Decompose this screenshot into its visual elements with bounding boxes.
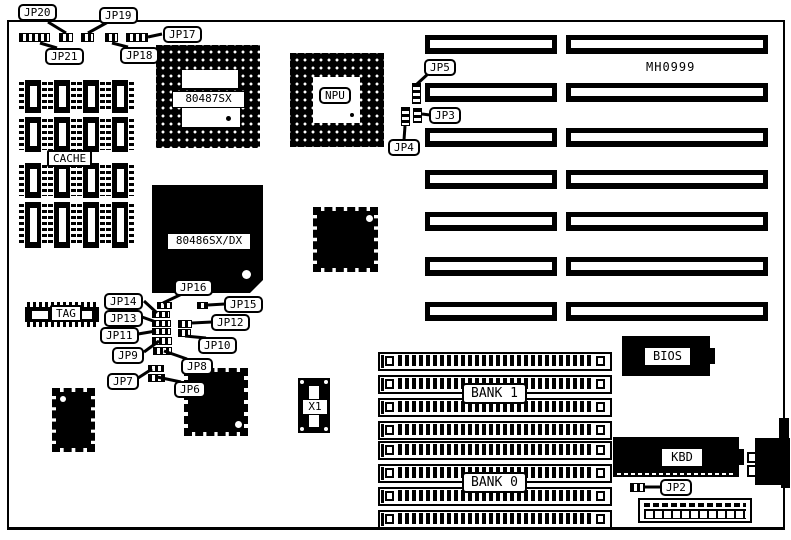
cache-chip	[54, 80, 70, 113]
cache-chip	[112, 163, 128, 198]
jumper-label-jp19: JP19	[99, 7, 138, 24]
qfp-chip	[313, 207, 378, 272]
jumper-block-jp2	[630, 483, 645, 492]
npu-socket: NPU	[290, 53, 384, 147]
cache-chip	[25, 117, 41, 152]
jumper-block-jp11	[152, 328, 171, 335]
cache-chip	[112, 202, 128, 248]
pin1-marker	[366, 215, 373, 222]
pin1-marker	[242, 270, 251, 279]
kbd-label: KBD	[661, 448, 703, 467]
bios-chip: BIOS	[622, 336, 710, 376]
isa-slot-segment	[425, 212, 557, 231]
cache-chip	[25, 163, 41, 198]
pin1-marker	[235, 421, 242, 428]
power-connector	[638, 498, 752, 523]
isa-slot-segment	[425, 35, 557, 54]
solder-dot	[300, 427, 304, 431]
cache-chip	[112, 80, 128, 113]
cache-chip	[83, 117, 99, 152]
jumper-block-jp18	[105, 33, 118, 42]
board-model-text: MH0999	[646, 60, 695, 74]
crystal-pad	[309, 386, 319, 399]
jumper-block-jp15	[197, 302, 208, 309]
din-pin	[747, 452, 757, 463]
jumper-block-jp3	[413, 108, 422, 123]
isa-slot-segment	[566, 35, 768, 54]
jumper-block-jp17	[126, 33, 148, 42]
pin1-marker	[60, 396, 66, 402]
solder-dot	[324, 427, 328, 431]
cache-chip	[112, 117, 128, 152]
crystal-label: X1	[302, 399, 328, 415]
simm-socket	[378, 441, 612, 460]
jumper-label-jp4: JP4	[388, 139, 420, 156]
motherboard-diagram: JP20 JP19 JP17 JP21 JP18 CACHE 80487SX N…	[0, 0, 791, 540]
cache-chip	[83, 202, 99, 248]
jumper-label-jp7: JP7	[107, 373, 139, 390]
bank1-label: BANK 1	[462, 383, 527, 404]
kbd-controller-chip: KBD	[613, 437, 739, 477]
jumper-block-jp21	[19, 33, 50, 42]
keyboard-din-connector	[755, 438, 790, 485]
isa-slot-segment	[566, 128, 768, 147]
jumper-label-jp20: JP20	[18, 4, 57, 21]
jumper-label-jp17: JP17	[163, 26, 202, 43]
cpu-label: 80486SX/DX	[167, 233, 251, 250]
chip-notch	[710, 348, 715, 364]
simm-socket	[378, 510, 612, 529]
jumper-block-jp13	[152, 320, 171, 327]
jumper-label-jp11: JP11	[100, 327, 139, 344]
jumper-label-jp9: JP9	[112, 347, 144, 364]
solder-dot	[324, 380, 328, 384]
isa-slot-segment	[566, 257, 768, 276]
pin1-marker	[226, 116, 231, 121]
keyboard-din-connector	[781, 480, 790, 488]
jumper-block-jp19	[81, 33, 94, 42]
isa-slot-segment	[425, 302, 557, 321]
isa-slot-segment	[566, 83, 768, 102]
jumper-block-jp8	[153, 347, 172, 355]
jumper-label-jp5: JP5	[424, 59, 456, 76]
socket-cutout	[182, 108, 240, 127]
npu-label: NPU	[319, 87, 351, 104]
jumper-label-jp12: JP12	[211, 314, 250, 331]
jumper-block-jp10	[178, 329, 191, 337]
copro-socket-80487sx: 80487SX	[156, 45, 260, 148]
keyboard-din-connector	[779, 418, 789, 439]
jumper-block-jp14	[152, 311, 170, 318]
jumper-block-jp9	[152, 337, 172, 345]
pin1-marker	[350, 113, 354, 117]
chip-pin-row	[617, 473, 735, 475]
din-pin	[747, 465, 757, 477]
qfp-chip	[52, 388, 95, 452]
jumper-block-jp6	[148, 374, 165, 382]
bank0-label: BANK 0	[462, 472, 527, 493]
socket-cutout	[182, 70, 238, 88]
jumper-label-jp8: JP8	[181, 358, 213, 375]
jumper-label-jp14: JP14	[104, 293, 143, 310]
jumper-label-jp3: JP3	[429, 107, 461, 124]
cache-chip	[54, 117, 70, 152]
jumper-block-jp20	[59, 33, 73, 42]
simm-socket	[378, 352, 612, 371]
jumper-label-jp13: JP13	[104, 310, 143, 327]
isa-slot-segment	[566, 212, 768, 231]
cache-chip	[83, 80, 99, 113]
jumper-block-jp4	[401, 107, 410, 126]
qfp-chip	[184, 368, 248, 436]
copro-socket-label: 80487SX	[172, 91, 245, 108]
jumper-label-jp16: JP16	[174, 279, 213, 296]
chip-notch	[739, 449, 744, 465]
jumper-label-jp2: JP2	[660, 479, 692, 496]
jumper-block-jp5	[412, 83, 421, 104]
isa-slot-segment	[566, 170, 768, 189]
isa-slot-segment	[425, 170, 557, 189]
jumper-label-jp10: JP10	[198, 337, 237, 354]
cache-chip	[83, 163, 99, 198]
isa-slot-segment	[566, 302, 768, 321]
cache-label: CACHE	[47, 150, 92, 167]
crystal-pad	[309, 414, 319, 427]
cache-chip	[25, 202, 41, 248]
bios-label: BIOS	[644, 347, 691, 366]
isa-slot-segment	[425, 257, 557, 276]
cpu-chip-80486: 80486SX/DX	[152, 185, 263, 293]
jumper-label-jp21: JP21	[45, 48, 84, 65]
jumper-block-jp12	[178, 320, 192, 328]
cache-chip	[25, 80, 41, 113]
jumper-label-jp6: JP6	[174, 381, 206, 398]
isa-slot-segment	[425, 128, 557, 147]
solder-dot	[300, 380, 304, 384]
jumper-label-jp18: JP18	[120, 47, 159, 64]
cache-chip	[54, 202, 70, 248]
jumper-label-jp15: JP15	[224, 296, 263, 313]
cache-chip	[54, 163, 70, 198]
isa-slot-segment	[425, 83, 557, 102]
jumper-block-jp7	[148, 365, 164, 372]
simm-socket	[378, 421, 612, 440]
crystal-x1: X1	[298, 378, 330, 433]
jumper-block-jp16	[157, 302, 172, 309]
tag-label: TAG	[50, 305, 82, 322]
